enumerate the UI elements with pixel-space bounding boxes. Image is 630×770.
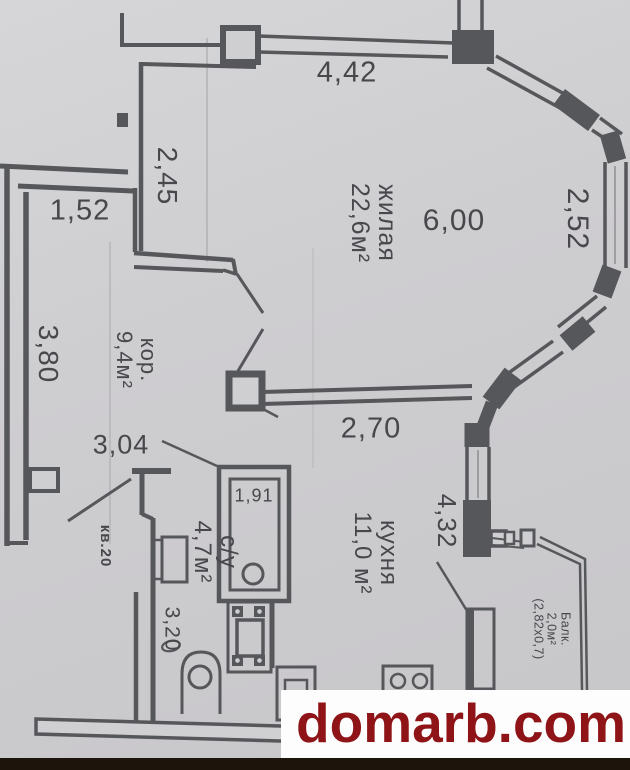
room-label-bathroom: с/у 4,7м²: [189, 521, 241, 584]
dim-bathroom-width: 1,91: [234, 486, 273, 505]
room-name-living: жилая: [373, 183, 400, 263]
washing-machine: [162, 537, 187, 582]
bay-corner-block: [452, 30, 494, 64]
dim-kitchen-right: 4,32: [433, 494, 461, 549]
dim-wc-depth: 3,20: [160, 607, 183, 652]
room-label-balcony: Балк. 2,0м² (2,82х0,7): [531, 598, 572, 659]
dim-living-top: 4,42: [317, 57, 377, 88]
room-area-living: 22,6м²: [346, 183, 373, 263]
room-label-living: жилая 22,6м²: [346, 183, 400, 263]
room-name-bathroom: с/у: [215, 521, 241, 584]
apartment-number-label: кв.20: [97, 525, 113, 568]
room-area-kitchen: 11,0 м²: [349, 511, 375, 594]
dim-closet-width: 1,52: [50, 195, 110, 226]
room-name-kitchen: кухня: [375, 511, 401, 594]
dim-living-left: 2,45: [152, 147, 182, 206]
watermark-text: domarb.com: [281, 690, 630, 756]
wall-block: [463, 500, 491, 557]
room-label-corridor: кор. 9,4м²: [112, 331, 160, 389]
room-area-corridor: 9,4м²: [112, 331, 136, 389]
window-box: [223, 28, 258, 62]
dim-bay-right: 2,52: [561, 188, 593, 250]
dim-corridor-left: 3,80: [33, 325, 63, 384]
entry-door-jamb: [30, 469, 58, 491]
dim-hallway-width: 3,04: [93, 430, 150, 459]
pillar: [229, 374, 262, 408]
photo-edge-strip: [0, 758, 630, 770]
room-area-balcony: 2,0м²: [544, 598, 558, 659]
door-swing: [237, 274, 263, 313]
dim-living-bottom: 2,70: [341, 413, 401, 444]
dim-living-width: 6,00: [423, 205, 485, 237]
entry-door-swing: [68, 479, 131, 521]
door-swing: [238, 329, 263, 371]
room-area-bathroom: 4,7м²: [189, 521, 215, 584]
room-name-corridor: кор.: [136, 331, 160, 389]
watermark-band: domarb.com: [281, 690, 630, 758]
floor-plan-photo: 4,42 2,45 1,52 6,00 2,52 3,80 3,04 2,70 …: [0, 0, 630, 770]
room-size-balcony: (2,82х0,7): [531, 598, 545, 659]
room-label-kitchen: кухня 11,0 м²: [349, 511, 401, 594]
toilet: [182, 652, 220, 714]
room-name-balcony: Балк.: [558, 598, 572, 659]
